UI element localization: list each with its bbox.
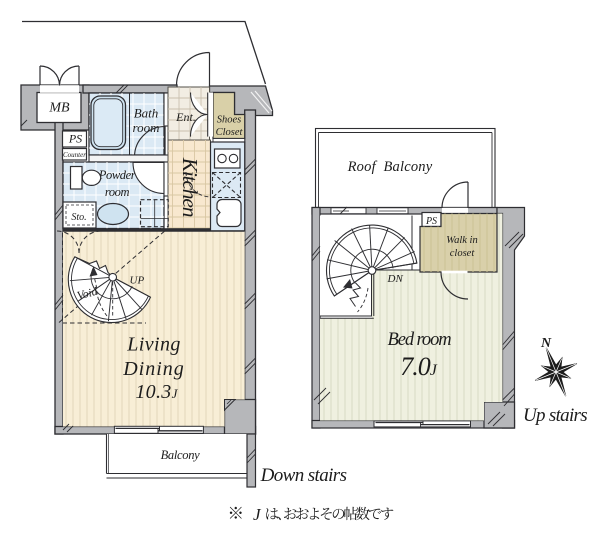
svg-text:Balcony: Balcony [161, 448, 201, 462]
svg-text:Powder: Powder [98, 168, 136, 182]
svg-text:Dining: Dining [122, 358, 185, 380]
svg-text:PS: PS [425, 216, 437, 227]
svg-text:UP: UP [130, 275, 145, 287]
svg-text:Shoes: Shoes [217, 115, 242, 126]
svg-text:Walk in: Walk in [446, 235, 477, 246]
svg-text:Sto.: Sto. [71, 212, 86, 223]
svg-text:MB: MB [48, 101, 70, 116]
svg-text:room: room [105, 185, 130, 199]
svg-text:Down stairs: Down stairs [260, 465, 347, 486]
svg-text:Bath: Bath [134, 106, 159, 121]
svg-text:Up stairs: Up stairs [523, 405, 587, 426]
svg-text:N: N [540, 336, 552, 351]
svg-text:closet: closet [450, 248, 476, 259]
svg-text:Ent.: Ent. [175, 110, 196, 124]
svg-text:DN: DN [387, 273, 404, 285]
svg-text:Bed room: Bed room [388, 330, 452, 350]
svg-text:Closet: Closet [216, 127, 244, 138]
svg-text:Roof Balcony: Roof Balcony [347, 159, 433, 175]
svg-text:Counter: Counter [63, 151, 86, 159]
svg-text:PS: PS [68, 132, 82, 146]
svg-text:Living: Living [126, 334, 181, 356]
svg-text:Kitchen: Kitchen [178, 157, 202, 217]
